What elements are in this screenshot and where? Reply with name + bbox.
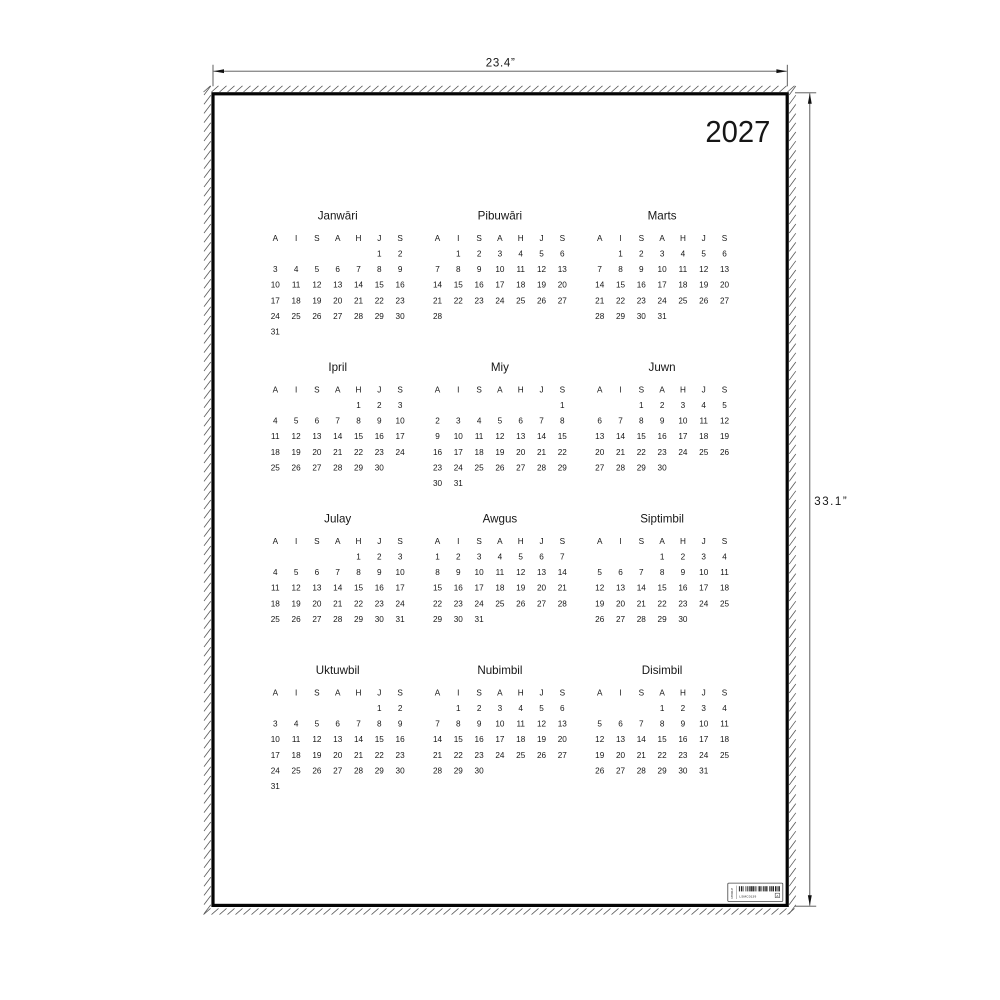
- svg-text:H: H: [356, 234, 362, 243]
- svg-text:19: 19: [292, 448, 302, 457]
- svg-text:12: 12: [292, 584, 302, 593]
- svg-text:9: 9: [398, 265, 403, 274]
- svg-text:3: 3: [701, 553, 706, 562]
- svg-text:8: 8: [618, 265, 623, 274]
- svg-text:12: 12: [495, 432, 505, 441]
- svg-text:15: 15: [375, 281, 385, 290]
- svg-text:8: 8: [377, 720, 382, 729]
- svg-text:S: S: [639, 688, 645, 697]
- svg-text:18: 18: [678, 281, 688, 290]
- svg-text:17: 17: [271, 296, 281, 305]
- svg-text:26: 26: [537, 751, 547, 760]
- svg-text:13: 13: [333, 735, 343, 744]
- svg-text:11: 11: [699, 417, 708, 426]
- svg-text:Julay: Julay: [324, 513, 351, 526]
- svg-text:23.4”: 23.4”: [486, 58, 515, 70]
- svg-text:9: 9: [477, 265, 482, 274]
- svg-text:J: J: [702, 688, 706, 697]
- svg-text:7: 7: [356, 720, 361, 729]
- svg-text:25: 25: [720, 599, 730, 608]
- svg-text:13: 13: [516, 432, 526, 441]
- svg-text:23: 23: [454, 599, 464, 608]
- svg-text:24: 24: [699, 751, 709, 760]
- svg-text:30: 30: [375, 615, 385, 624]
- svg-text:18: 18: [516, 281, 526, 290]
- svg-text:4: 4: [498, 553, 503, 562]
- svg-text:J: J: [539, 688, 543, 697]
- svg-text:4: 4: [273, 568, 278, 577]
- svg-text:7: 7: [639, 568, 644, 577]
- svg-text:31: 31: [454, 479, 464, 488]
- svg-text:A: A: [776, 894, 778, 898]
- svg-text:10: 10: [699, 720, 709, 729]
- svg-text:13: 13: [312, 432, 322, 441]
- svg-text:30: 30: [396, 766, 406, 775]
- svg-text:I: I: [619, 688, 621, 697]
- svg-text:5: 5: [498, 417, 503, 426]
- svg-text:11: 11: [496, 568, 505, 577]
- svg-text:6: 6: [335, 265, 340, 274]
- svg-text:16: 16: [433, 448, 443, 457]
- svg-text:29: 29: [354, 463, 364, 472]
- svg-text:28: 28: [354, 312, 364, 321]
- svg-text:6: 6: [315, 568, 320, 577]
- svg-text:20: 20: [616, 751, 626, 760]
- svg-text:7: 7: [539, 417, 544, 426]
- svg-text:S: S: [397, 234, 403, 243]
- svg-text:16: 16: [637, 281, 647, 290]
- svg-text:A: A: [273, 688, 279, 697]
- svg-text:10: 10: [495, 720, 505, 729]
- svg-text:I: I: [457, 537, 459, 546]
- svg-text:18: 18: [475, 448, 485, 457]
- svg-text:J: J: [702, 537, 706, 546]
- svg-text:15: 15: [558, 432, 568, 441]
- svg-text:27: 27: [312, 463, 322, 472]
- svg-text:4: 4: [681, 250, 686, 259]
- svg-text:Awgus: Awgus: [483, 513, 518, 526]
- svg-text:11: 11: [475, 432, 484, 441]
- svg-text:I: I: [295, 234, 297, 243]
- svg-text:2: 2: [435, 417, 440, 426]
- svg-text:25: 25: [516, 296, 526, 305]
- svg-text:8: 8: [356, 568, 361, 577]
- svg-text:1: 1: [377, 704, 382, 713]
- svg-text:24: 24: [495, 296, 505, 305]
- svg-text:21: 21: [537, 448, 547, 457]
- svg-text:H: H: [680, 688, 686, 697]
- svg-text:S: S: [476, 537, 482, 546]
- svg-text:26: 26: [292, 615, 302, 624]
- svg-text:10: 10: [396, 417, 406, 426]
- svg-text:27: 27: [333, 766, 343, 775]
- svg-text:16: 16: [396, 735, 406, 744]
- svg-text:20: 20: [616, 599, 626, 608]
- svg-text:5: 5: [539, 250, 544, 259]
- svg-text:20: 20: [595, 448, 605, 457]
- svg-text:S: S: [314, 537, 320, 546]
- svg-text:7: 7: [560, 553, 565, 562]
- svg-text:J: J: [377, 234, 381, 243]
- svg-text:26: 26: [516, 599, 526, 608]
- svg-text:3: 3: [273, 720, 278, 729]
- svg-text:19: 19: [312, 751, 322, 760]
- svg-text:S: S: [560, 385, 566, 394]
- svg-text:21: 21: [433, 296, 443, 305]
- svg-text:19: 19: [537, 281, 547, 290]
- svg-text:8: 8: [377, 265, 382, 274]
- svg-text:21: 21: [616, 448, 626, 457]
- svg-text:19: 19: [595, 751, 605, 760]
- svg-text:26: 26: [292, 463, 302, 472]
- svg-text:A: A: [597, 537, 603, 546]
- svg-text:A: A: [659, 234, 665, 243]
- svg-text:J: J: [539, 234, 543, 243]
- svg-text:17: 17: [475, 584, 485, 593]
- svg-text:28: 28: [637, 766, 647, 775]
- svg-text:17: 17: [699, 735, 709, 744]
- svg-text:1: 1: [618, 250, 623, 259]
- svg-text:S: S: [722, 688, 728, 697]
- svg-text:A: A: [273, 385, 279, 394]
- svg-text:8: 8: [639, 417, 644, 426]
- svg-text:25: 25: [678, 296, 688, 305]
- svg-text:18: 18: [720, 735, 730, 744]
- svg-text:2: 2: [456, 553, 461, 562]
- svg-text:19: 19: [720, 432, 730, 441]
- svg-text:15: 15: [637, 432, 647, 441]
- svg-text:2027: 2027: [705, 114, 770, 149]
- svg-text:20: 20: [516, 448, 526, 457]
- svg-text:26: 26: [699, 296, 709, 305]
- svg-text:28: 28: [558, 599, 568, 608]
- svg-text:S: S: [560, 234, 566, 243]
- svg-text:14: 14: [616, 432, 626, 441]
- svg-text:4: 4: [701, 401, 706, 410]
- svg-text:22: 22: [354, 448, 364, 457]
- svg-text:22: 22: [454, 296, 464, 305]
- svg-text:4: 4: [294, 265, 299, 274]
- svg-text:29: 29: [616, 312, 626, 321]
- svg-text:25: 25: [271, 615, 281, 624]
- svg-text:14: 14: [333, 432, 343, 441]
- svg-text:J: J: [702, 234, 706, 243]
- svg-text:29: 29: [658, 766, 668, 775]
- svg-text:21: 21: [637, 751, 647, 760]
- svg-text:19: 19: [537, 735, 547, 744]
- svg-text:20: 20: [537, 584, 547, 593]
- svg-text:5: 5: [294, 417, 299, 426]
- svg-text:H: H: [518, 688, 524, 697]
- svg-text:26: 26: [537, 296, 547, 305]
- svg-text:27: 27: [616, 766, 626, 775]
- svg-text:29: 29: [658, 615, 668, 624]
- svg-text:13: 13: [720, 265, 730, 274]
- svg-text:4: 4: [518, 250, 523, 259]
- svg-text:31: 31: [396, 615, 406, 624]
- svg-text:I: I: [295, 688, 297, 697]
- svg-text:25: 25: [271, 463, 281, 472]
- svg-text:15: 15: [658, 735, 668, 744]
- svg-text:10: 10: [678, 417, 688, 426]
- svg-text:27: 27: [595, 463, 605, 472]
- svg-text:J: J: [377, 688, 381, 697]
- svg-text:26: 26: [595, 615, 605, 624]
- svg-text:17: 17: [454, 448, 464, 457]
- svg-text:4: 4: [722, 553, 727, 562]
- svg-text:22: 22: [433, 599, 443, 608]
- svg-text:13: 13: [558, 265, 568, 274]
- svg-text:Disimbil: Disimbil: [642, 664, 683, 677]
- svg-text:1: 1: [356, 553, 361, 562]
- svg-text:18: 18: [516, 735, 526, 744]
- svg-text:12: 12: [312, 281, 322, 290]
- svg-text:A: A: [335, 688, 341, 697]
- svg-text:28: 28: [354, 766, 364, 775]
- svg-text:4: 4: [273, 417, 278, 426]
- svg-text:H: H: [680, 537, 686, 546]
- svg-text:23: 23: [475, 751, 485, 760]
- svg-text:A: A: [597, 234, 603, 243]
- svg-text:1: 1: [639, 401, 644, 410]
- svg-text:12: 12: [516, 568, 526, 577]
- svg-text:30: 30: [475, 766, 485, 775]
- svg-text:31: 31: [658, 312, 668, 321]
- svg-text:13: 13: [333, 281, 343, 290]
- svg-text:S: S: [314, 688, 320, 697]
- svg-text:15: 15: [658, 584, 668, 593]
- svg-text:J: J: [539, 537, 543, 546]
- svg-text:2: 2: [477, 704, 482, 713]
- svg-text:I: I: [457, 385, 459, 394]
- svg-text:21: 21: [333, 599, 343, 608]
- svg-text:A: A: [335, 537, 341, 546]
- svg-text:16: 16: [678, 584, 688, 593]
- svg-text:11: 11: [516, 265, 525, 274]
- svg-text:21: 21: [354, 751, 364, 760]
- svg-text:11: 11: [679, 265, 688, 274]
- svg-text:9: 9: [639, 265, 644, 274]
- svg-text:4: 4: [477, 417, 482, 426]
- svg-text:9: 9: [377, 417, 382, 426]
- svg-text:28: 28: [433, 312, 443, 321]
- svg-text:S: S: [560, 688, 566, 697]
- svg-text:25: 25: [699, 448, 709, 457]
- svg-text:9: 9: [477, 720, 482, 729]
- svg-text:3: 3: [477, 553, 482, 562]
- svg-text:5: 5: [294, 568, 299, 577]
- svg-text:13: 13: [616, 735, 626, 744]
- svg-text:22: 22: [558, 448, 568, 457]
- svg-text:9: 9: [660, 417, 665, 426]
- svg-text:1: 1: [560, 401, 565, 410]
- svg-text:23: 23: [475, 296, 485, 305]
- svg-text:7: 7: [356, 265, 361, 274]
- svg-text:29: 29: [375, 766, 385, 775]
- svg-text:3: 3: [398, 401, 403, 410]
- svg-text:16: 16: [658, 432, 668, 441]
- svg-text:S: S: [397, 537, 403, 546]
- svg-text:14: 14: [558, 568, 568, 577]
- svg-text:20: 20: [312, 448, 322, 457]
- svg-text:A: A: [435, 234, 441, 243]
- svg-text:31: 31: [271, 328, 281, 337]
- svg-text:3: 3: [398, 553, 403, 562]
- svg-text:S: S: [314, 234, 320, 243]
- svg-text:13: 13: [616, 584, 626, 593]
- svg-text:Miy: Miy: [491, 361, 509, 374]
- svg-text:17: 17: [495, 281, 505, 290]
- svg-text:H: H: [356, 385, 362, 394]
- svg-text:23: 23: [396, 296, 406, 305]
- svg-text:A: A: [435, 537, 441, 546]
- svg-text:2: 2: [681, 704, 686, 713]
- svg-text:23: 23: [375, 448, 385, 457]
- svg-text:6: 6: [518, 417, 523, 426]
- svg-text:13: 13: [595, 432, 605, 441]
- svg-text:30: 30: [433, 479, 443, 488]
- svg-text:A: A: [497, 385, 503, 394]
- svg-text:18: 18: [720, 584, 730, 593]
- svg-text:A: A: [497, 537, 503, 546]
- svg-text:3: 3: [498, 704, 503, 713]
- svg-text:19: 19: [516, 584, 526, 593]
- svg-text:26: 26: [720, 448, 730, 457]
- svg-text:5: 5: [597, 720, 602, 729]
- svg-text:5: 5: [722, 401, 727, 410]
- svg-text:S: S: [476, 385, 482, 394]
- svg-text:8: 8: [560, 417, 565, 426]
- svg-text:14: 14: [333, 584, 343, 593]
- svg-text:14: 14: [433, 281, 443, 290]
- svg-text:8: 8: [456, 720, 461, 729]
- svg-text:5: 5: [518, 553, 523, 562]
- svg-text:9: 9: [681, 568, 686, 577]
- svg-text:27: 27: [720, 296, 730, 305]
- svg-text:I: I: [295, 385, 297, 394]
- svg-text:2: 2: [477, 250, 482, 259]
- svg-text:27: 27: [333, 312, 343, 321]
- svg-text:22: 22: [658, 751, 668, 760]
- svg-text:21: 21: [354, 296, 364, 305]
- svg-text:19: 19: [312, 296, 322, 305]
- svg-text:12: 12: [595, 584, 605, 593]
- svg-text:16: 16: [678, 735, 688, 744]
- svg-text:17: 17: [678, 432, 688, 441]
- svg-text:11: 11: [271, 432, 280, 441]
- svg-text:3: 3: [660, 250, 665, 259]
- svg-text:A: A: [273, 537, 279, 546]
- svg-text:23: 23: [433, 463, 443, 472]
- svg-text:9: 9: [398, 720, 403, 729]
- svg-text:H: H: [518, 385, 524, 394]
- svg-text:16: 16: [475, 735, 485, 744]
- svg-text:Uktuwbil: Uktuwbil: [316, 664, 360, 677]
- svg-text:12: 12: [595, 735, 605, 744]
- svg-text:29: 29: [637, 463, 647, 472]
- svg-text:22: 22: [616, 296, 626, 305]
- svg-text:A: A: [659, 688, 665, 697]
- svg-text:33.1”: 33.1”: [814, 496, 847, 508]
- svg-text:18: 18: [271, 448, 281, 457]
- svg-text:LSMC0139: LSMC0139: [739, 894, 756, 898]
- svg-text:16: 16: [396, 281, 406, 290]
- svg-text:S: S: [397, 688, 403, 697]
- svg-text:16: 16: [375, 432, 385, 441]
- svg-text:13: 13: [558, 720, 568, 729]
- svg-text:18: 18: [271, 599, 281, 608]
- svg-text:5: 5: [597, 568, 602, 577]
- svg-text:10: 10: [495, 265, 505, 274]
- svg-text:2: 2: [398, 704, 403, 713]
- svg-text:26: 26: [312, 312, 322, 321]
- svg-text:14: 14: [354, 281, 364, 290]
- svg-text:S: S: [476, 234, 482, 243]
- svg-text:10: 10: [454, 432, 464, 441]
- svg-text:19: 19: [495, 448, 505, 457]
- svg-text:A: A: [659, 385, 665, 394]
- svg-text:J: J: [377, 537, 381, 546]
- svg-text:Marts: Marts: [648, 210, 677, 223]
- svg-text:23: 23: [396, 751, 406, 760]
- svg-text:A: A: [597, 688, 603, 697]
- svg-text:H: H: [356, 537, 362, 546]
- svg-text:H: H: [680, 385, 686, 394]
- svg-text:I: I: [295, 537, 297, 546]
- svg-text:25: 25: [495, 599, 505, 608]
- svg-text:13: 13: [537, 568, 547, 577]
- svg-text:19: 19: [292, 599, 302, 608]
- svg-text:16590-P: 16590-P: [730, 888, 734, 899]
- svg-text:25: 25: [475, 463, 485, 472]
- svg-text:15: 15: [616, 281, 626, 290]
- svg-text:26: 26: [495, 463, 505, 472]
- svg-text:H: H: [518, 537, 524, 546]
- svg-text:15: 15: [375, 735, 385, 744]
- svg-text:6: 6: [618, 720, 623, 729]
- svg-text:4: 4: [518, 704, 523, 713]
- svg-text:Janwāri: Janwāri: [318, 210, 358, 223]
- svg-text:29: 29: [375, 312, 385, 321]
- svg-text:15: 15: [354, 432, 364, 441]
- svg-text:16: 16: [475, 281, 485, 290]
- svg-text:A: A: [335, 385, 341, 394]
- svg-text:24: 24: [658, 296, 668, 305]
- svg-text:6: 6: [315, 417, 320, 426]
- svg-text:24: 24: [271, 766, 281, 775]
- svg-text:21: 21: [333, 448, 343, 457]
- svg-text:28: 28: [637, 615, 647, 624]
- svg-text:26: 26: [312, 766, 322, 775]
- svg-text:7: 7: [618, 417, 623, 426]
- svg-text:I: I: [457, 688, 459, 697]
- svg-text:3: 3: [701, 704, 706, 713]
- svg-text:30: 30: [678, 615, 688, 624]
- svg-text:3: 3: [681, 401, 686, 410]
- svg-text:1: 1: [356, 401, 361, 410]
- svg-text:24: 24: [271, 312, 281, 321]
- svg-text:3: 3: [498, 250, 503, 259]
- svg-text:10: 10: [475, 568, 485, 577]
- svg-text:9: 9: [681, 720, 686, 729]
- svg-text:2: 2: [681, 553, 686, 562]
- svg-text:20: 20: [558, 281, 568, 290]
- svg-text:22: 22: [454, 751, 464, 760]
- svg-text:30: 30: [678, 766, 688, 775]
- svg-text:14: 14: [595, 281, 605, 290]
- svg-text:9: 9: [377, 568, 382, 577]
- svg-text:6: 6: [560, 704, 565, 713]
